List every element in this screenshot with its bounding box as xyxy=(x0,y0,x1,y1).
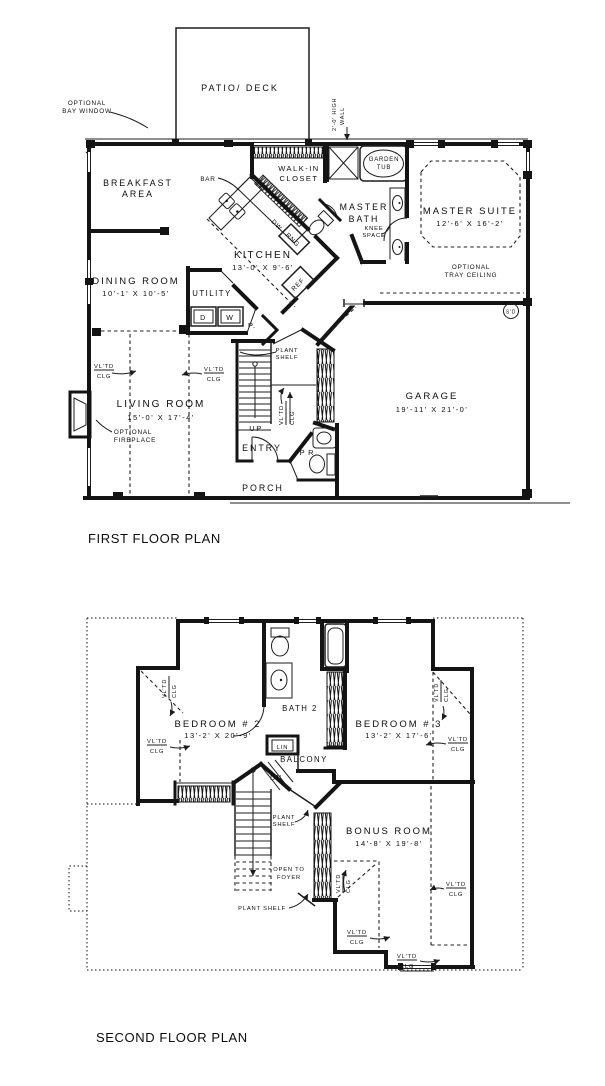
svg-text:UP: UP xyxy=(249,424,262,433)
svg-text:CLG: CLG xyxy=(449,892,463,898)
svg-text:14'-8' X 19'-8': 14'-8' X 19'-8' xyxy=(355,839,422,848)
svg-text:CLG: CLG xyxy=(444,688,450,702)
svg-text:MASTER: MASTER xyxy=(340,202,389,212)
svg-text:BATH: BATH xyxy=(349,214,380,224)
svg-text:W: W xyxy=(226,315,233,322)
svg-text:CLG: CLG xyxy=(207,377,221,383)
svg-text:VL'TD: VL'TD xyxy=(94,364,114,370)
svg-text:GARAGE: GARAGE xyxy=(406,391,459,402)
svg-text:CLG: CLG xyxy=(400,964,414,970)
svg-text:FOYER: FOYER xyxy=(277,875,301,881)
svg-text:BAY WINDOW: BAY WINDOW xyxy=(62,108,111,115)
svg-text:13'-2' X 17'-6': 13'-2' X 17'-6' xyxy=(365,731,432,740)
svg-text:DN: DN xyxy=(270,775,282,782)
svg-text:LIN: LIN xyxy=(277,745,288,751)
svg-text:BREAKFAST: BREAKFAST xyxy=(103,178,173,188)
svg-text:VL'TD: VL'TD xyxy=(162,679,168,698)
svg-text:WALL: WALL xyxy=(340,107,346,125)
svg-text:D: D xyxy=(200,315,206,322)
svg-text:GARDEN: GARDEN xyxy=(369,157,399,163)
svg-text:OPEN TO: OPEN TO xyxy=(273,867,304,873)
svg-text:VL'TD: VL'TD xyxy=(347,930,367,936)
svg-text:P.: P. xyxy=(248,321,256,330)
svg-text:VL'TD: VL'TD xyxy=(147,739,167,745)
svg-text:10'-1' X 10'-5': 10'-1' X 10'-5' xyxy=(102,289,169,298)
svg-text:19'-11' X 21'-0': 19'-11' X 21'-0' xyxy=(396,405,469,414)
svg-text:UTILITY: UTILITY xyxy=(192,289,232,298)
svg-text:PORCH: PORCH xyxy=(242,483,284,493)
svg-text:SECOND FLOOR PLAN: SECOND FLOOR PLAN xyxy=(96,1030,248,1045)
svg-text:VL'TD: VL'TD xyxy=(279,405,285,425)
svg-text:BATH 2: BATH 2 xyxy=(282,704,318,713)
svg-text:CLG: CLG xyxy=(350,940,364,946)
svg-text:CLG: CLG xyxy=(172,684,178,698)
svg-text:12'-6' X 16'-2': 12'-6' X 16'-2' xyxy=(436,219,503,228)
svg-text:VL'TD: VL'TD xyxy=(446,882,466,888)
svg-text:CLG: CLG xyxy=(150,749,164,755)
svg-text:CLG: CLG xyxy=(451,747,465,753)
svg-text:VL'TD: VL'TD xyxy=(434,683,440,702)
svg-text:FIRST FLOOR PLAN: FIRST FLOOR PLAN xyxy=(88,531,221,546)
svg-text:15'-0' X 17'-4': 15'-0' X 17'-4' xyxy=(127,413,194,422)
svg-text:TRAY CEILING: TRAY CEILING xyxy=(445,272,498,279)
svg-text:VL'TD: VL'TD xyxy=(204,367,224,373)
svg-text:KNEE: KNEE xyxy=(365,226,384,232)
svg-text:TUB: TUB xyxy=(377,165,391,171)
svg-text:CLG: CLG xyxy=(97,374,111,380)
svg-text:13'-2' X 20'-9': 13'-2' X 20'-9' xyxy=(184,731,251,740)
svg-text:VL'TD: VL'TD xyxy=(336,874,342,893)
svg-text:SHELF: SHELF xyxy=(273,822,296,828)
svg-text:2'-0' HIGH: 2'-0' HIGH xyxy=(332,98,338,131)
svg-text:FIREPLACE: FIREPLACE xyxy=(114,437,156,444)
svg-text:VL'TD: VL'TD xyxy=(397,954,417,960)
svg-text:CLG: CLG xyxy=(290,411,296,425)
svg-text:PLANT SHELF: PLANT SHELF xyxy=(238,906,286,912)
svg-text:13'-0' X 9'-6': 13'-0' X 9'-6' xyxy=(232,263,294,272)
svg-text:BEDROOM # 2: BEDROOM # 2 xyxy=(175,719,262,730)
svg-text:PLANT: PLANT xyxy=(276,348,299,354)
svg-text:MASTER SUITE: MASTER SUITE xyxy=(423,206,517,217)
svg-text:S'D: S'D xyxy=(506,310,516,316)
svg-text:BONUS ROOM: BONUS ROOM xyxy=(346,826,432,837)
svg-text:LIVING ROOM: LIVING ROOM xyxy=(117,399,206,410)
svg-text:BAR: BAR xyxy=(200,176,215,183)
svg-text:KITCHEN: KITCHEN xyxy=(234,250,292,261)
svg-text:P R: P R xyxy=(300,448,315,457)
svg-text:BALCONY: BALCONY xyxy=(280,755,328,764)
svg-text:AREA: AREA xyxy=(122,189,154,199)
svg-text:CLOSET: CLOSET xyxy=(279,174,318,183)
svg-text:OPTIONAL: OPTIONAL xyxy=(114,429,152,436)
svg-text:OPTIONAL: OPTIONAL xyxy=(452,264,490,271)
svg-text:SHELF: SHELF xyxy=(276,355,299,361)
svg-text:OPTIONAL: OPTIONAL xyxy=(68,100,106,107)
svg-text:PATIO/ DECK: PATIO/ DECK xyxy=(201,83,279,93)
svg-text:PLANT: PLANT xyxy=(273,815,296,821)
svg-text:DINING ROOM: DINING ROOM xyxy=(92,276,179,287)
svg-text:CLG: CLG xyxy=(346,879,352,893)
svg-text:WALK-IN: WALK-IN xyxy=(278,164,319,173)
svg-text:VL'TD: VL'TD xyxy=(448,737,468,743)
svg-text:BEDROOM # 3: BEDROOM # 3 xyxy=(356,719,443,730)
